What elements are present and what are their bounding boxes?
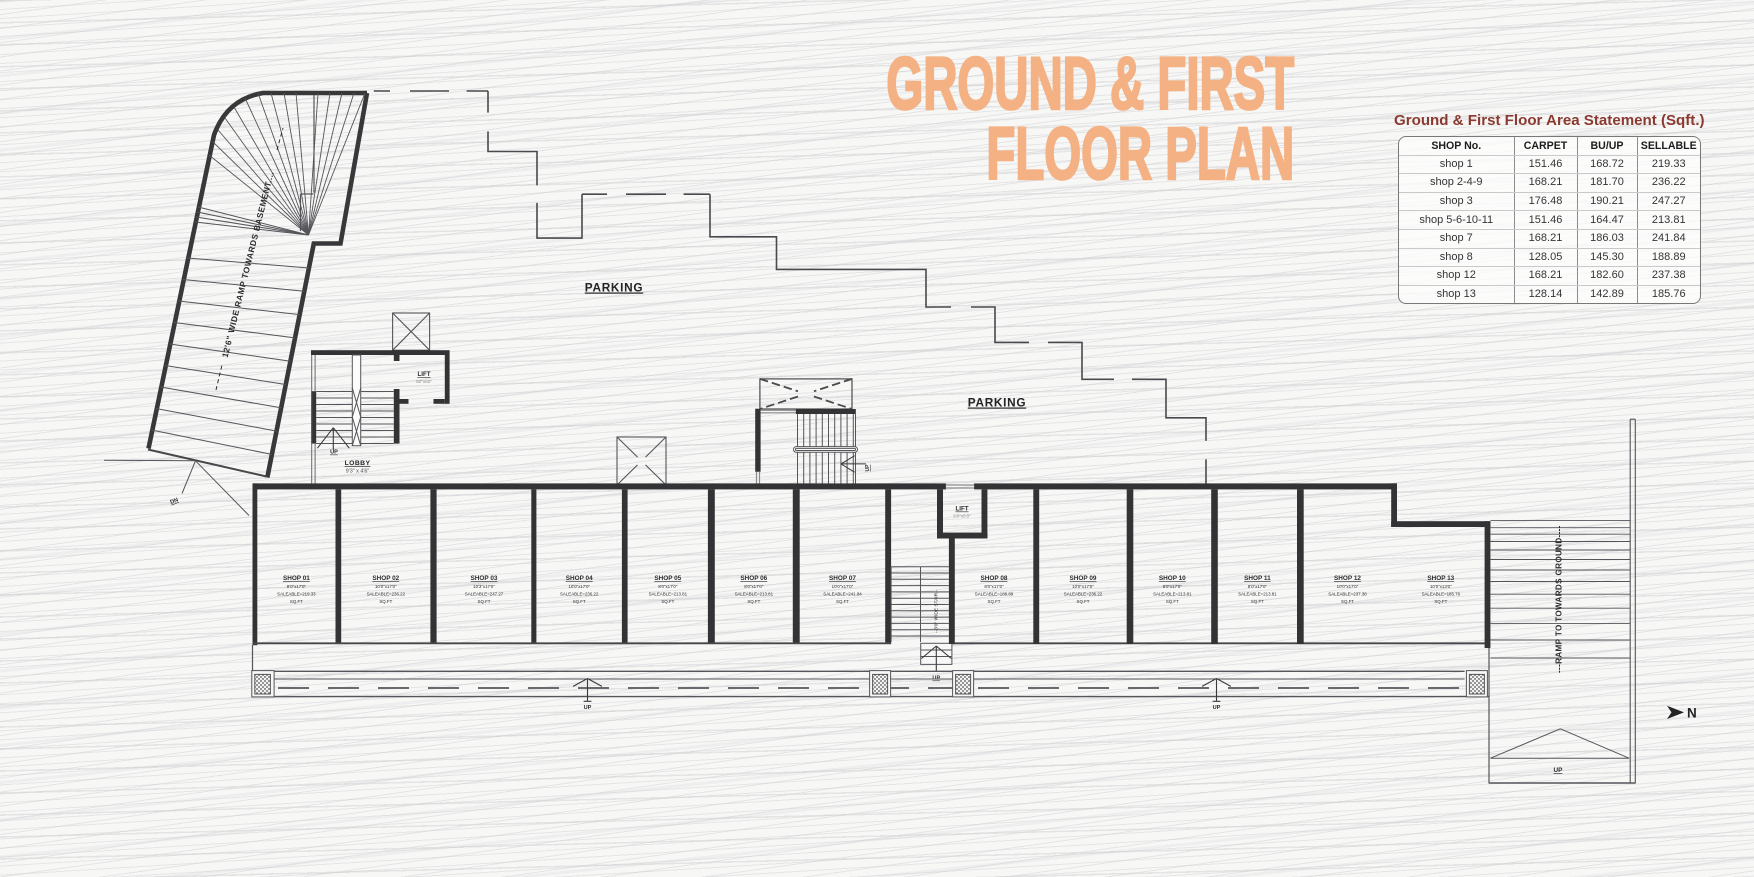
svg-text:SQ.FT: SQ.FT [836,599,849,604]
svg-text:DN: DN [170,497,180,506]
svg-text:SQ.FT: SQ.FT [1077,599,1090,604]
svg-text:PARKING: PARKING [585,281,643,295]
svg-text:PARKING: PARKING [968,396,1026,410]
svg-text:SALEABLE=213.81: SALEABLE=213.81 [649,592,688,597]
svg-text:SQ.FT: SQ.FT [747,599,760,604]
svg-text:LIFT: LIFT [955,506,968,513]
svg-text:UP: UP [330,450,338,456]
svg-text:SHOP 03: SHOP 03 [471,575,498,582]
svg-text:SHOP 07: SHOP 07 [829,575,856,582]
svg-text:8'0"x17'0": 8'0"x17'0" [658,584,678,589]
svg-text:--3'0" WIDE STAIR--: --3'0" WIDE STAIR-- [934,589,940,633]
svg-text:50"x60": 50"x60" [416,379,432,384]
svg-text:SQ.FT: SQ.FT [988,599,1001,604]
svg-text:N: N [1687,706,1697,721]
svg-text:SHOP 13: SHOP 13 [1427,575,1454,582]
svg-text:SHOP 09: SHOP 09 [1070,575,1097,582]
svg-text:SQ.FT: SQ.FT [573,599,586,604]
svg-text:SALEABLE=236.22: SALEABLE=236.22 [367,592,406,597]
svg-text:8'0"x17'0": 8'0"x17'0" [1248,584,1268,589]
svg-text:SHOP 04: SHOP 04 [566,575,593,582]
svg-text:8'0"x17'0": 8'0"x17'0" [984,584,1004,589]
svg-text:---RAMP TO TOWARDS GROUND----: ---RAMP TO TOWARDS GROUND---- [1555,525,1564,673]
svg-text:SQ.FT: SQ.FT [1166,599,1179,604]
svg-text:SHOP 02: SHOP 02 [372,575,399,582]
svg-text:SALEABLE=236.22: SALEABLE=236.22 [1064,592,1103,597]
svg-text:SALEABLE=247.27: SALEABLE=247.27 [465,592,504,597]
svg-text:LIFT: LIFT [417,371,430,378]
svg-text:SHOP 10: SHOP 10 [1159,575,1186,582]
svg-text:SALEABLE=237.38: SALEABLE=237.38 [1328,592,1367,597]
svg-text:10'0"x17'0": 10'0"x17'0" [832,584,854,589]
svg-text:SQ.FT: SQ.FT [1341,599,1354,604]
svg-text:SQ.FT: SQ.FT [661,599,674,604]
svg-text:9'3" x 4'6": 9'3" x 4'6" [346,469,370,475]
svg-text:SQ.FT: SQ.FT [478,599,491,604]
svg-text:UP: UP [1213,705,1221,711]
svg-text:UP: UP [865,464,871,472]
svg-text:UP: UP [1554,767,1564,774]
svg-text:10'0"x17'0": 10'0"x17'0" [1337,584,1359,589]
svg-text:SALEABLE=213.81: SALEABLE=213.81 [1153,592,1192,597]
svg-text:SQ.FT: SQ.FT [1251,599,1264,604]
svg-text:SHOP 11: SHOP 11 [1244,575,1271,582]
svg-text:SHOP 06: SHOP 06 [740,575,767,582]
svg-text:10'0"x17'0": 10'0"x17'0" [568,584,590,589]
svg-text:10'3"x17'0": 10'3"x17'0" [473,584,495,589]
svg-text:SALEABLE=236.22: SALEABLE=236.22 [560,592,599,597]
svg-text:SALEABLE=213.81: SALEABLE=213.81 [1238,592,1277,597]
svg-text:SALEABLE=213.81: SALEABLE=213.81 [735,592,774,597]
svg-text:SQ.FT: SQ.FT [290,599,303,604]
svg-text:SHOP 05: SHOP 05 [654,575,681,582]
svg-text:8'0"x17'0": 8'0"x17'0" [287,584,307,589]
svg-text:SALEABLE=219.33: SALEABLE=219.33 [277,592,316,597]
svg-text:SALEABLE=241.84: SALEABLE=241.84 [823,592,862,597]
svg-text:8'0"x17'0": 8'0"x17'0" [744,584,764,589]
svg-text:8'0"x17'0": 8'0"x17'0" [1163,584,1183,589]
svg-text:SHOP 08: SHOP 08 [981,575,1008,582]
svg-text:SALEABLE=185.76: SALEABLE=185.76 [1422,592,1461,597]
svg-text:5'0"x5'0": 5'0"x5'0" [953,514,971,519]
svg-text:LOBBY: LOBBY [345,460,371,467]
svg-text:10'0"x17'0": 10'0"x17'0" [1072,584,1094,589]
svg-text:SQ.FT: SQ.FT [379,599,392,604]
svg-text:SALEABLE=188.89: SALEABLE=188.89 [975,592,1014,597]
svg-text:10'0"x13'0": 10'0"x13'0" [1430,584,1452,589]
svg-text:UP: UP [584,705,592,711]
svg-text:SHOP 01: SHOP 01 [283,575,310,582]
svg-text:SQ.FT: SQ.FT [1434,599,1447,604]
svg-text:10'0"x17'0": 10'0"x17'0" [375,584,397,589]
svg-text:SHOP 12: SHOP 12 [1334,575,1361,582]
